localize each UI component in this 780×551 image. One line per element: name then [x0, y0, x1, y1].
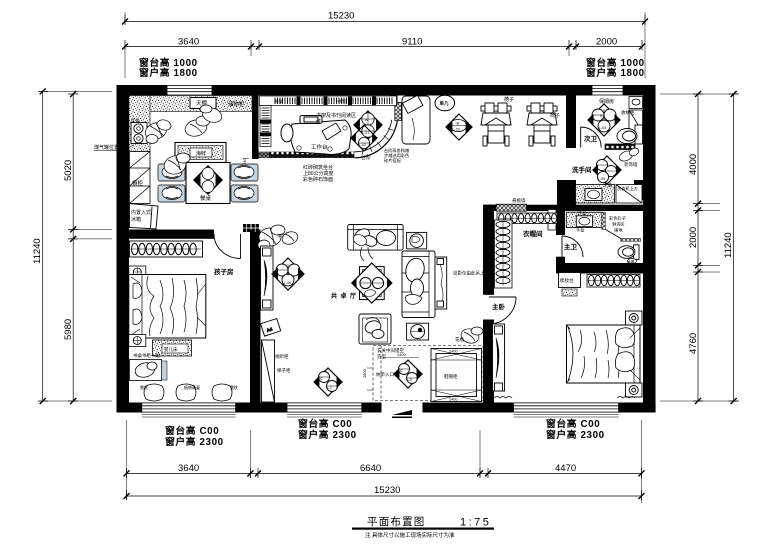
svg-text:彩色石子: 彩色石子: [609, 215, 626, 222]
svg-text:彩色碎石饰面: 彩色碎石饰面: [303, 176, 333, 183]
svg-text:手盆: 手盆: [603, 181, 612, 188]
svg-text:L-02: L-02: [359, 143, 366, 147]
svg-text:洗手间: 洗手间: [572, 165, 592, 174]
svg-text:投影仪由此吊上: 投影仪由此吊上: [453, 270, 485, 277]
svg-text:手盆: 手盆: [576, 227, 585, 234]
svg-text:花瓶: 花瓶: [455, 336, 464, 343]
svg-text:书柜: 书柜: [261, 119, 269, 124]
svg-text:梯子柜: 梯子柜: [277, 367, 291, 374]
svg-text:1400: 1400: [397, 352, 407, 357]
svg-text:地漏: 地漏: [627, 259, 635, 264]
svg-text:1:75: 1:75: [460, 517, 491, 529]
svg-text:3640: 3640: [178, 463, 199, 474]
svg-text:靠枕: 靠枕: [230, 384, 238, 390]
svg-text:1800: 1800: [362, 368, 367, 378]
svg-text:造型: 造型: [377, 353, 386, 360]
svg-text:C: C: [400, 369, 403, 373]
svg-text:窗台高 C00: 窗台高 C00: [165, 424, 219, 437]
svg-text:平面布置图: 平面布置图: [367, 516, 426, 528]
svg-text:冰箱: 冰箱: [131, 216, 141, 223]
svg-text:15230: 15230: [374, 485, 400, 496]
svg-text:橱柜: 橱柜: [132, 179, 144, 187]
svg-text:梳妆台: 梳妆台: [560, 277, 574, 284]
svg-text:手盆: 手盆: [578, 210, 587, 217]
svg-text:窗台高 C00: 窗台高 C00: [298, 417, 352, 430]
svg-text:注 具体尺寸以施工现场实际尺寸为准: 注 具体尺寸以施工现场实际尺寸为准: [365, 531, 455, 539]
svg-text:淋浴区: 淋浴区: [612, 221, 625, 228]
svg-text:4470: 4470: [555, 463, 576, 474]
svg-text:1400: 1400: [449, 398, 457, 402]
svg-text:3640: 3640: [178, 37, 199, 48]
svg-text:婴儿床: 婴儿床: [164, 346, 178, 353]
svg-text:书柜: 书柜: [261, 132, 269, 137]
svg-text:孩子房: 孩子房: [214, 267, 234, 276]
svg-text:窗户高 2300: 窗户高 2300: [546, 428, 605, 441]
svg-text:窗户高 2300: 窗户高 2300: [165, 435, 224, 448]
svg-text:4000: 4000: [688, 154, 699, 175]
svg-text:次卫: 次卫: [584, 134, 598, 143]
svg-text:餐桌: 餐桌: [200, 194, 212, 202]
svg-text:11240: 11240: [723, 232, 734, 258]
svg-text:L-1: L-1: [327, 386, 332, 390]
svg-text:铺地: 铺地: [614, 227, 623, 234]
svg-text:主卧: 主卧: [492, 302, 506, 311]
svg-text:悬挑墙: 悬挑墙: [512, 197, 526, 204]
svg-text:靠枕: 靠枕: [140, 384, 148, 390]
svg-text:5020: 5020: [63, 160, 74, 181]
svg-text:B: B: [457, 121, 460, 126]
svg-text:视听柜: 视听柜: [275, 353, 289, 360]
svg-text:纳单入口: 纳单入口: [376, 371, 394, 378]
svg-text:窗户高 2300: 窗户高 2300: [298, 428, 357, 441]
svg-text:书架: 书架: [337, 98, 346, 105]
svg-text:衣帽间: 衣帽间: [523, 229, 543, 238]
svg-text:C: C: [320, 377, 323, 381]
svg-text:A: A: [365, 117, 368, 122]
svg-text:共卓厅: 共卓厅: [331, 292, 360, 300]
svg-text:L-05: L-05: [598, 177, 605, 181]
svg-text:单几: 单几: [440, 100, 449, 107]
svg-text:5980: 5980: [63, 319, 74, 340]
svg-text:11240: 11240: [32, 238, 43, 264]
svg-text:6640: 6640: [360, 463, 381, 474]
svg-text:L-03: L-03: [453, 128, 460, 132]
svg-text:L-2: L-2: [407, 378, 412, 382]
svg-text:鞋帽柜: 鞋帽柜: [444, 373, 458, 380]
svg-text:1400: 1400: [449, 350, 457, 354]
svg-text:L-01: L-01: [362, 131, 369, 135]
svg-text:储物柜: 储物柜: [228, 100, 245, 108]
svg-text:工作台: 工作台: [311, 143, 328, 151]
svg-text:椅子: 椅子: [504, 96, 514, 103]
svg-text:碎片搭配: 碎片搭配: [384, 157, 402, 164]
svg-text:窗台高 C00: 窗台高 C00: [546, 417, 600, 430]
svg-text:窗户高 1800: 窗户高 1800: [139, 66, 198, 79]
svg-text:上80公分高度: 上80公分高度: [303, 170, 334, 177]
svg-text:域: 域: [316, 118, 321, 125]
svg-text:窗户高 1800: 窗户高 1800: [586, 66, 645, 79]
svg-text:内置入式: 内置入式: [131, 209, 151, 216]
svg-text:收纳柜: 收纳柜: [621, 109, 635, 116]
svg-text:2000: 2000: [688, 227, 699, 248]
svg-text:15230: 15230: [328, 11, 354, 22]
svg-text:椅子: 椅子: [550, 112, 560, 119]
svg-text:2000: 2000: [596, 37, 617, 48]
svg-text:9110: 9110: [402, 37, 422, 48]
svg-text:书架: 书架: [274, 98, 283, 105]
svg-text:4760: 4760: [688, 333, 699, 354]
svg-text:灶台: 灶台: [131, 117, 139, 124]
svg-text:书架及书刊阅读区: 书架及书刊阅读区: [316, 112, 356, 119]
svg-text:L-06: L-06: [284, 281, 291, 285]
svg-text:洗衣机上方: 洗衣机上方: [617, 185, 638, 192]
svg-text:台阶: 台阶: [361, 154, 371, 161]
svg-text:植物藤蔓: 植物藤蔓: [184, 384, 200, 390]
svg-text:煤气罐位置: 煤气罐位置: [94, 144, 119, 151]
svg-text:红砖砌筑坐台: 红砖砌筑坐台: [303, 164, 333, 171]
svg-text:主卫: 主卫: [564, 242, 578, 251]
svg-text:海鲜: 海鲜: [196, 150, 206, 157]
svg-text:装饰墙: 装饰墙: [624, 161, 638, 168]
svg-text:书桌书柜一组: 书桌书柜一组: [133, 352, 160, 359]
svg-text:保姆房: 保姆房: [599, 98, 614, 105]
svg-text:L-04: L-04: [599, 126, 606, 130]
